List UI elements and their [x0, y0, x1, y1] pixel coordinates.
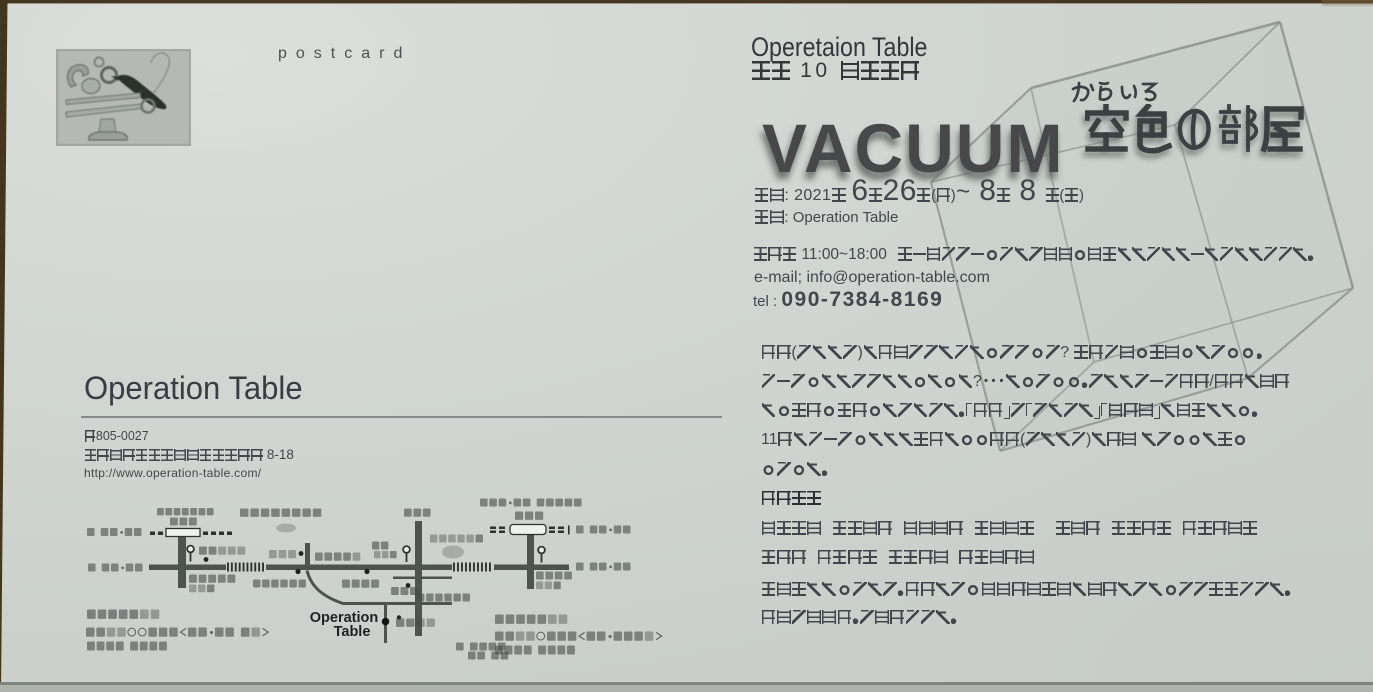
svg-text:Table: Table: [334, 624, 371, 640]
